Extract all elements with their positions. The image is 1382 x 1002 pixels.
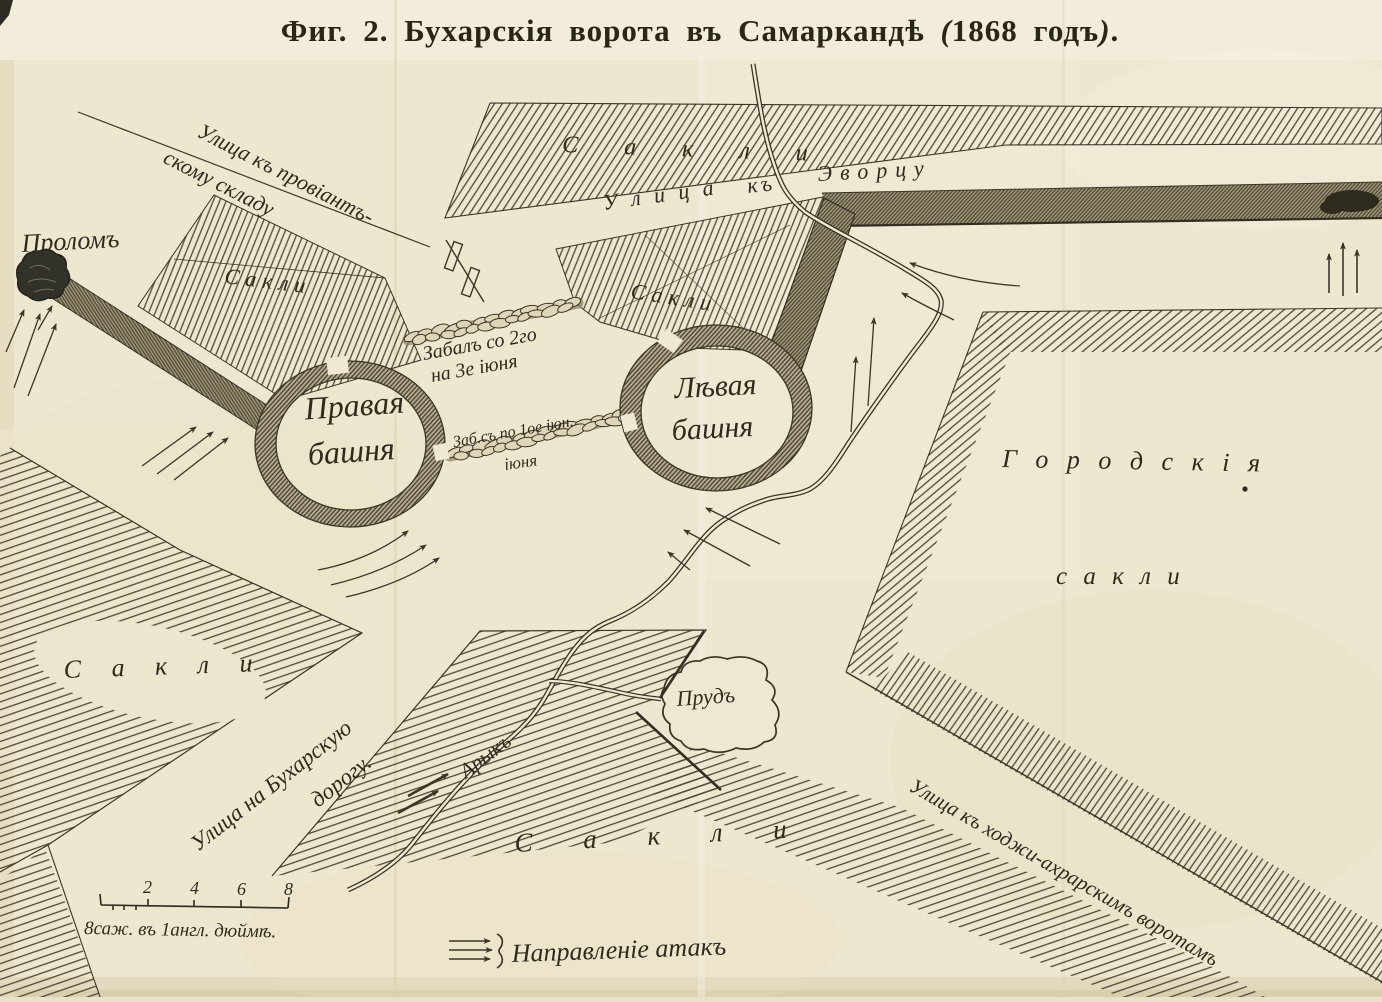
svg-text:Г о р о д с к і я: Г о р о д с к і я bbox=[1001, 444, 1266, 478]
svg-text:Фиг. 2. Бухарскія ворота въ Са: Фиг. 2. Бухарскія ворота въ Самаркандѣ (… bbox=[281, 13, 1120, 48]
svg-text:къ: къ bbox=[746, 170, 776, 198]
svg-text:Прудъ: Прудъ bbox=[675, 682, 736, 711]
svg-text:башня: башня bbox=[671, 410, 754, 447]
svg-text:6: 6 bbox=[237, 879, 246, 899]
svg-text:8: 8 bbox=[284, 879, 293, 899]
svg-text:4: 4 bbox=[190, 878, 199, 898]
svg-text:Правая: Правая bbox=[302, 384, 405, 427]
svg-text:8саж. въ 1англ. дюймѣ.: 8саж. въ 1англ. дюймѣ. bbox=[84, 918, 276, 942]
svg-text:Проломъ: Проломъ bbox=[20, 224, 120, 258]
svg-text:2: 2 bbox=[143, 877, 152, 897]
svg-text:башня: башня bbox=[307, 430, 396, 472]
svg-text:с а к л и: с а к л и bbox=[1056, 563, 1185, 590]
svg-text:Лѣвая: Лѣвая bbox=[673, 368, 758, 405]
